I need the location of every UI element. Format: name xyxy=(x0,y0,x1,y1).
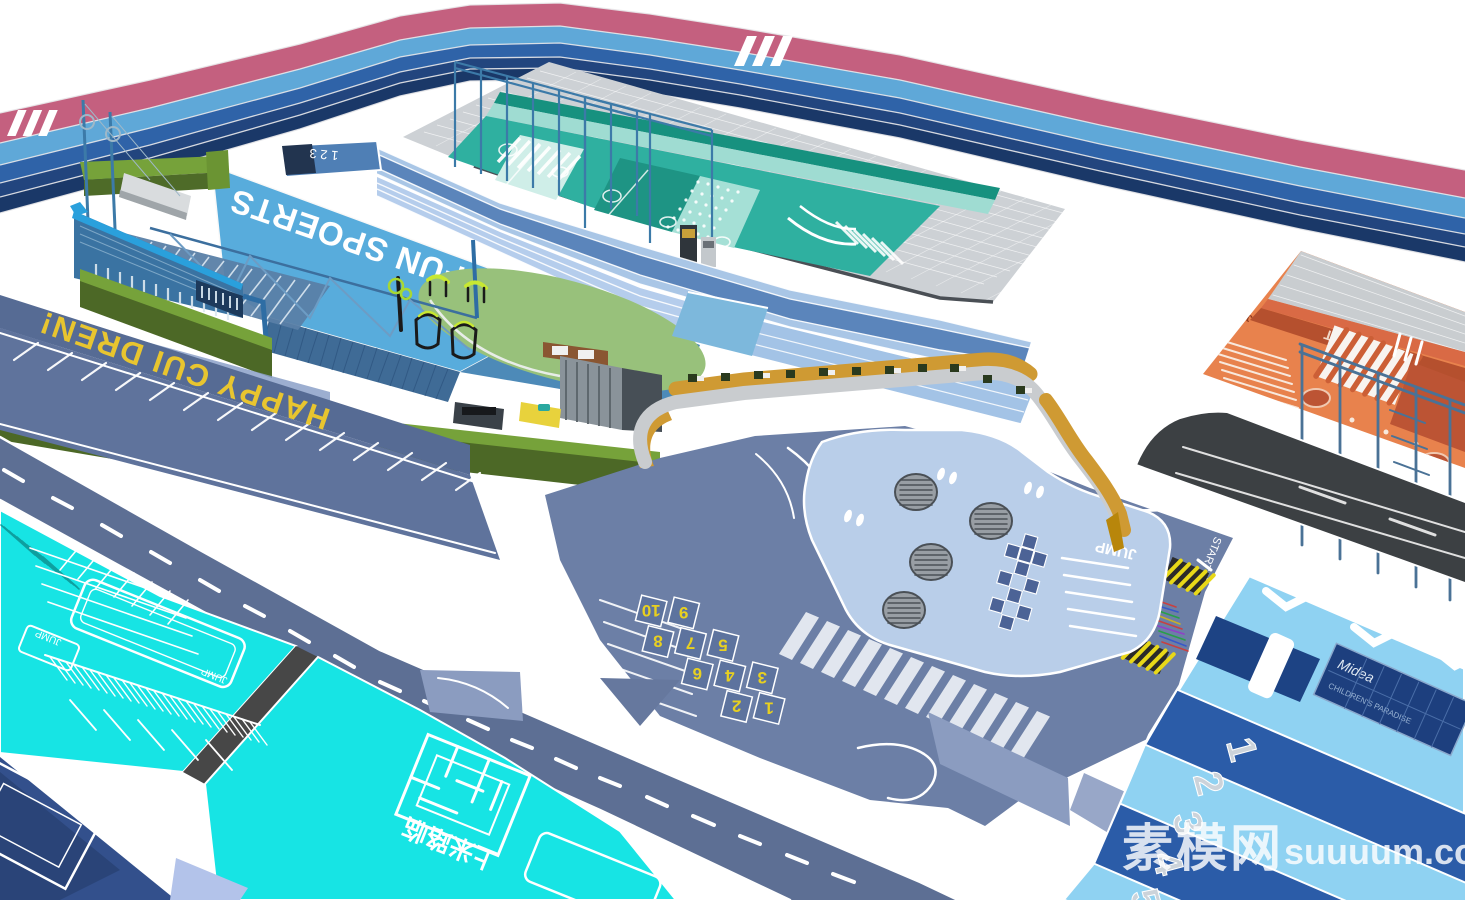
svg-text:10: 10 xyxy=(642,601,661,620)
svg-text:3: 3 xyxy=(758,668,767,687)
svg-text:4: 4 xyxy=(725,666,735,685)
svg-text:1 2 3: 1 2 3 xyxy=(309,146,339,163)
svg-text:6: 6 xyxy=(693,664,702,683)
svg-text:2: 2 xyxy=(732,696,741,715)
svg-text:8: 8 xyxy=(653,632,662,651)
svg-text:5: 5 xyxy=(718,635,727,654)
svg-text:7: 7 xyxy=(686,633,695,652)
svg-text:1: 1 xyxy=(764,698,773,717)
svg-text:9: 9 xyxy=(679,603,688,622)
svg-text:素模网: 素模网 xyxy=(1122,820,1284,877)
svg-text:suuuum.com: suuuum.com xyxy=(1284,831,1465,872)
